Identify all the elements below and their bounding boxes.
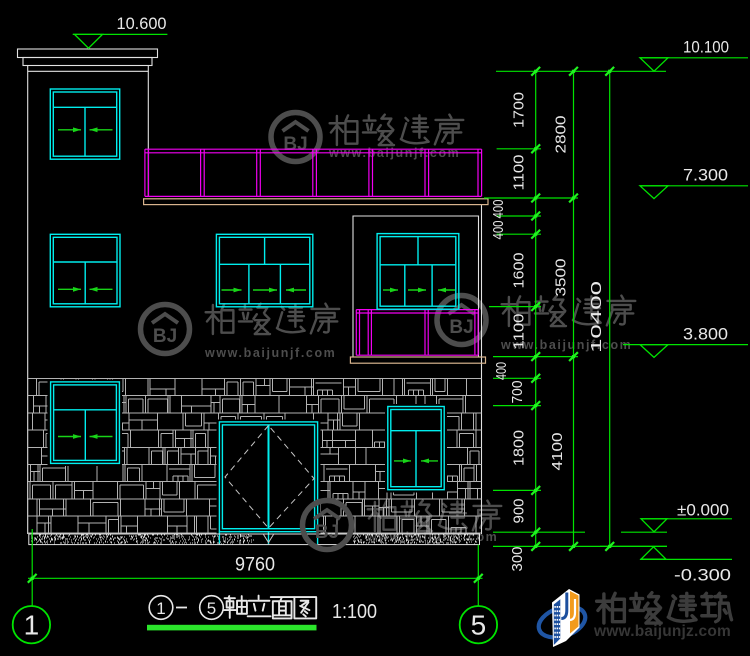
svg-text:BJ: BJ xyxy=(315,522,339,543)
svg-text:1700: 1700 xyxy=(511,92,528,128)
svg-text:2800: 2800 xyxy=(553,116,570,154)
svg-text:1: 1 xyxy=(156,599,165,618)
svg-text:4100: 4100 xyxy=(549,433,566,471)
svg-text:10.600: 10.600 xyxy=(117,15,167,33)
svg-text:-0.300: -0.300 xyxy=(674,567,731,585)
svg-text:700: 700 xyxy=(509,381,526,404)
svg-text:10.100: 10.100 xyxy=(683,39,729,57)
svg-text:www.baijunjf.com: www.baijunjf.com xyxy=(204,346,336,360)
svg-text:3500: 3500 xyxy=(553,259,570,297)
svg-text:9760: 9760 xyxy=(235,555,275,576)
svg-text:5: 5 xyxy=(207,599,216,618)
svg-text:BJ: BJ xyxy=(449,317,473,338)
svg-text:BJ: BJ xyxy=(283,134,307,155)
svg-text:400: 400 xyxy=(490,221,507,240)
svg-text:www.baijunjz.com: www.baijunjz.com xyxy=(593,623,731,640)
svg-text:300: 300 xyxy=(509,547,526,572)
svg-text:1:100: 1:100 xyxy=(332,601,377,623)
svg-text:900: 900 xyxy=(511,499,528,524)
svg-text:±0.000: ±0.000 xyxy=(677,502,729,520)
svg-text:400: 400 xyxy=(490,200,507,219)
svg-text:400: 400 xyxy=(493,362,510,380)
svg-text:5: 5 xyxy=(471,610,487,641)
svg-text:1100: 1100 xyxy=(511,314,528,350)
svg-text:1600: 1600 xyxy=(511,253,528,289)
svg-text:3.800: 3.800 xyxy=(683,326,728,344)
svg-text:BJ: BJ xyxy=(153,326,177,347)
svg-text:7.300: 7.300 xyxy=(683,167,728,185)
svg-text:10400: 10400 xyxy=(588,281,605,353)
svg-text:1: 1 xyxy=(24,610,40,641)
svg-text:1800: 1800 xyxy=(511,430,528,466)
svg-text:1100: 1100 xyxy=(511,155,528,191)
